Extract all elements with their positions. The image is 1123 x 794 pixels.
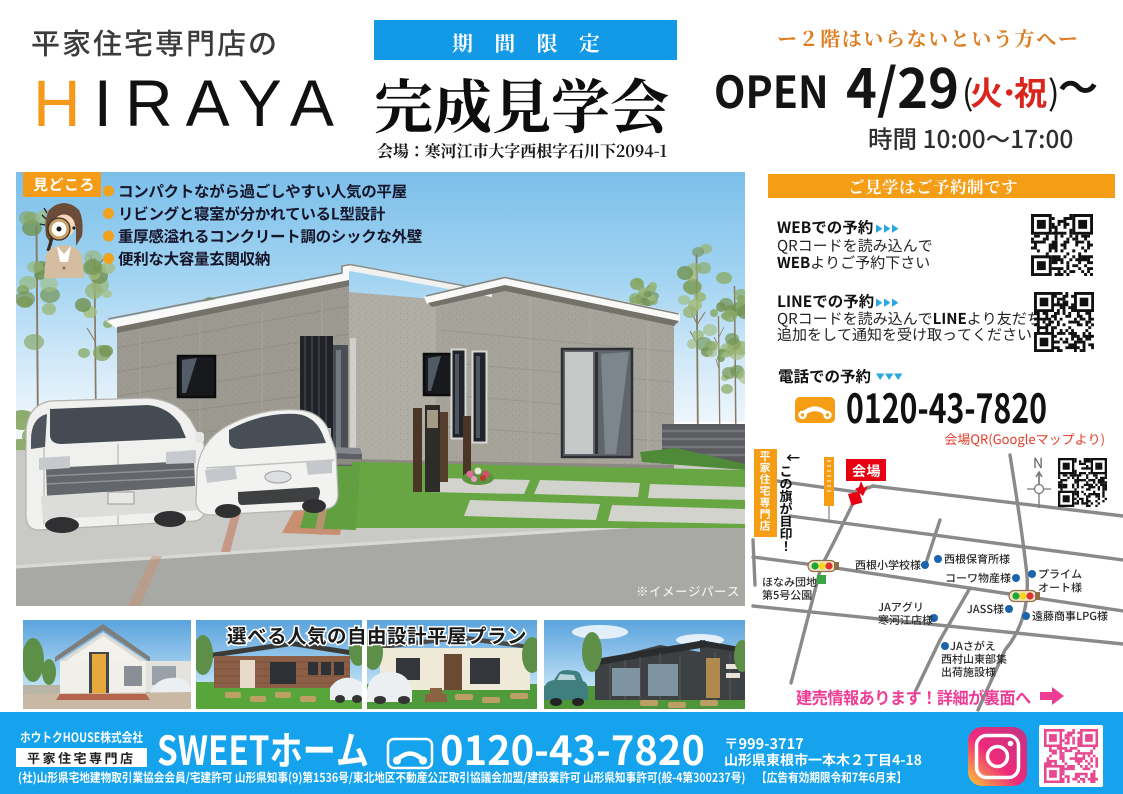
svg-text:HIRAYA: HIRAYA	[33, 66, 347, 140]
